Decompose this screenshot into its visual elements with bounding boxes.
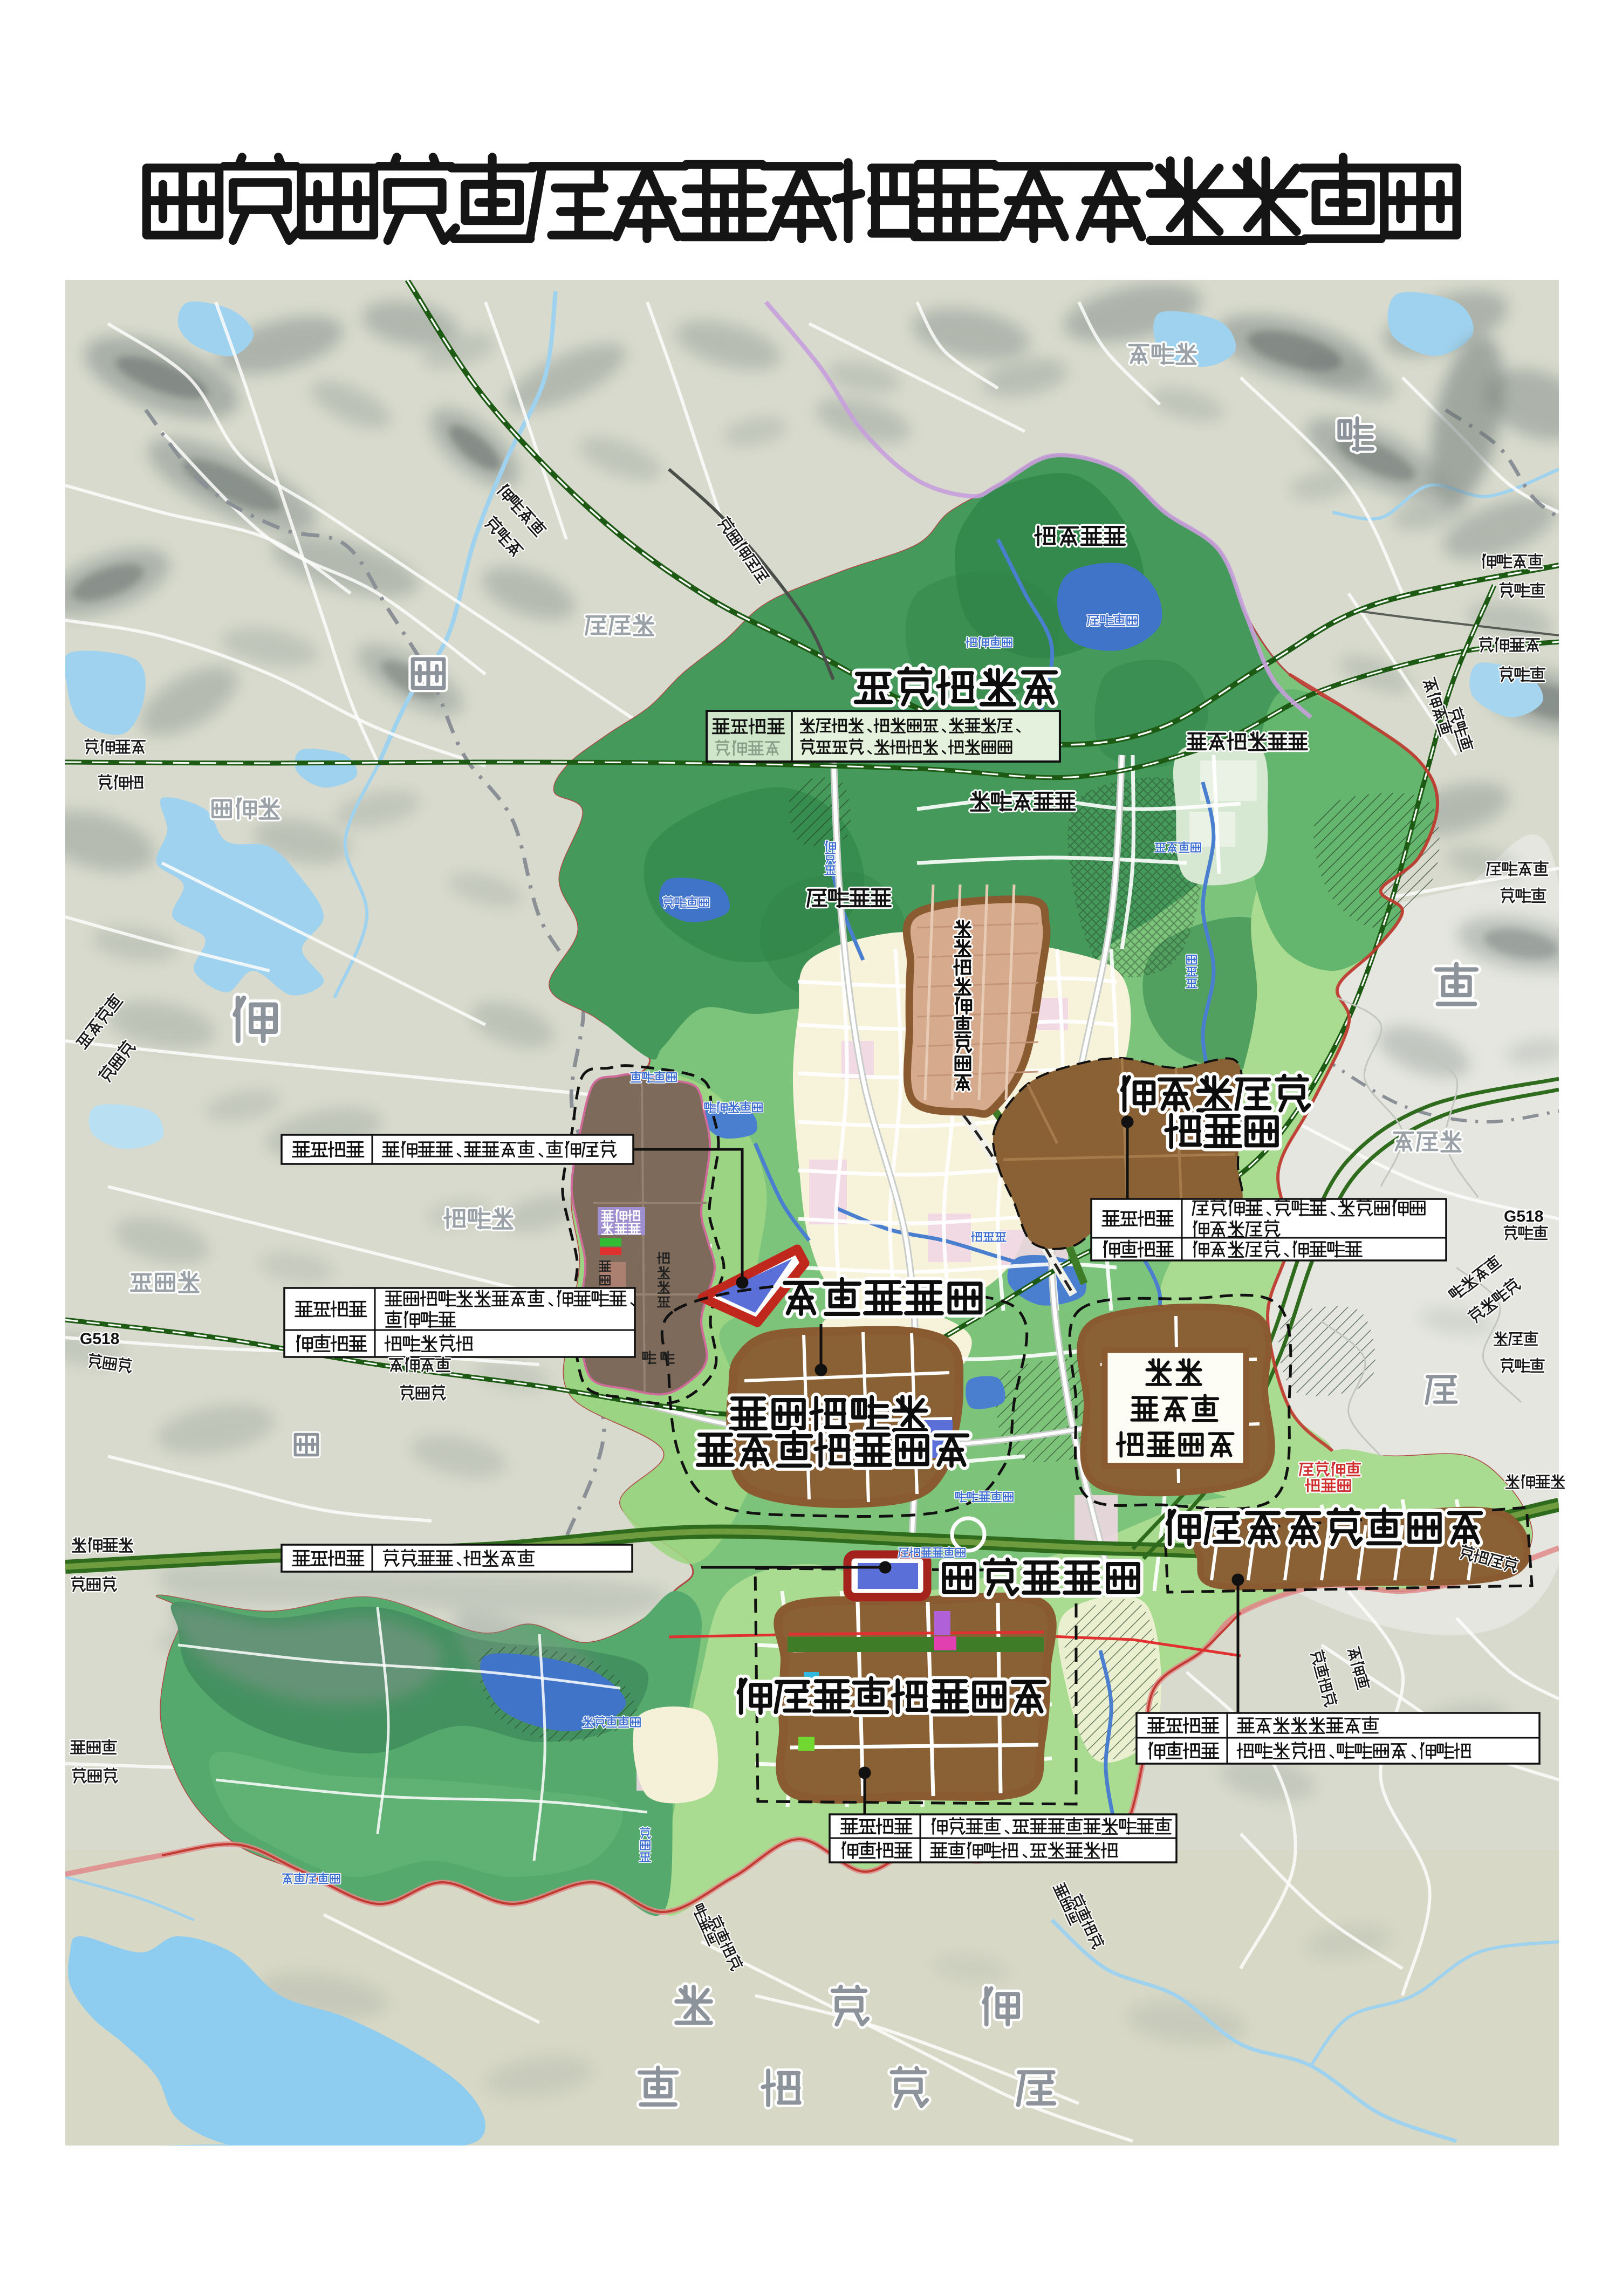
svg-text:G518: G518 bbox=[80, 1330, 119, 1348]
svg-text:G518: G518 bbox=[1504, 1208, 1543, 1225]
